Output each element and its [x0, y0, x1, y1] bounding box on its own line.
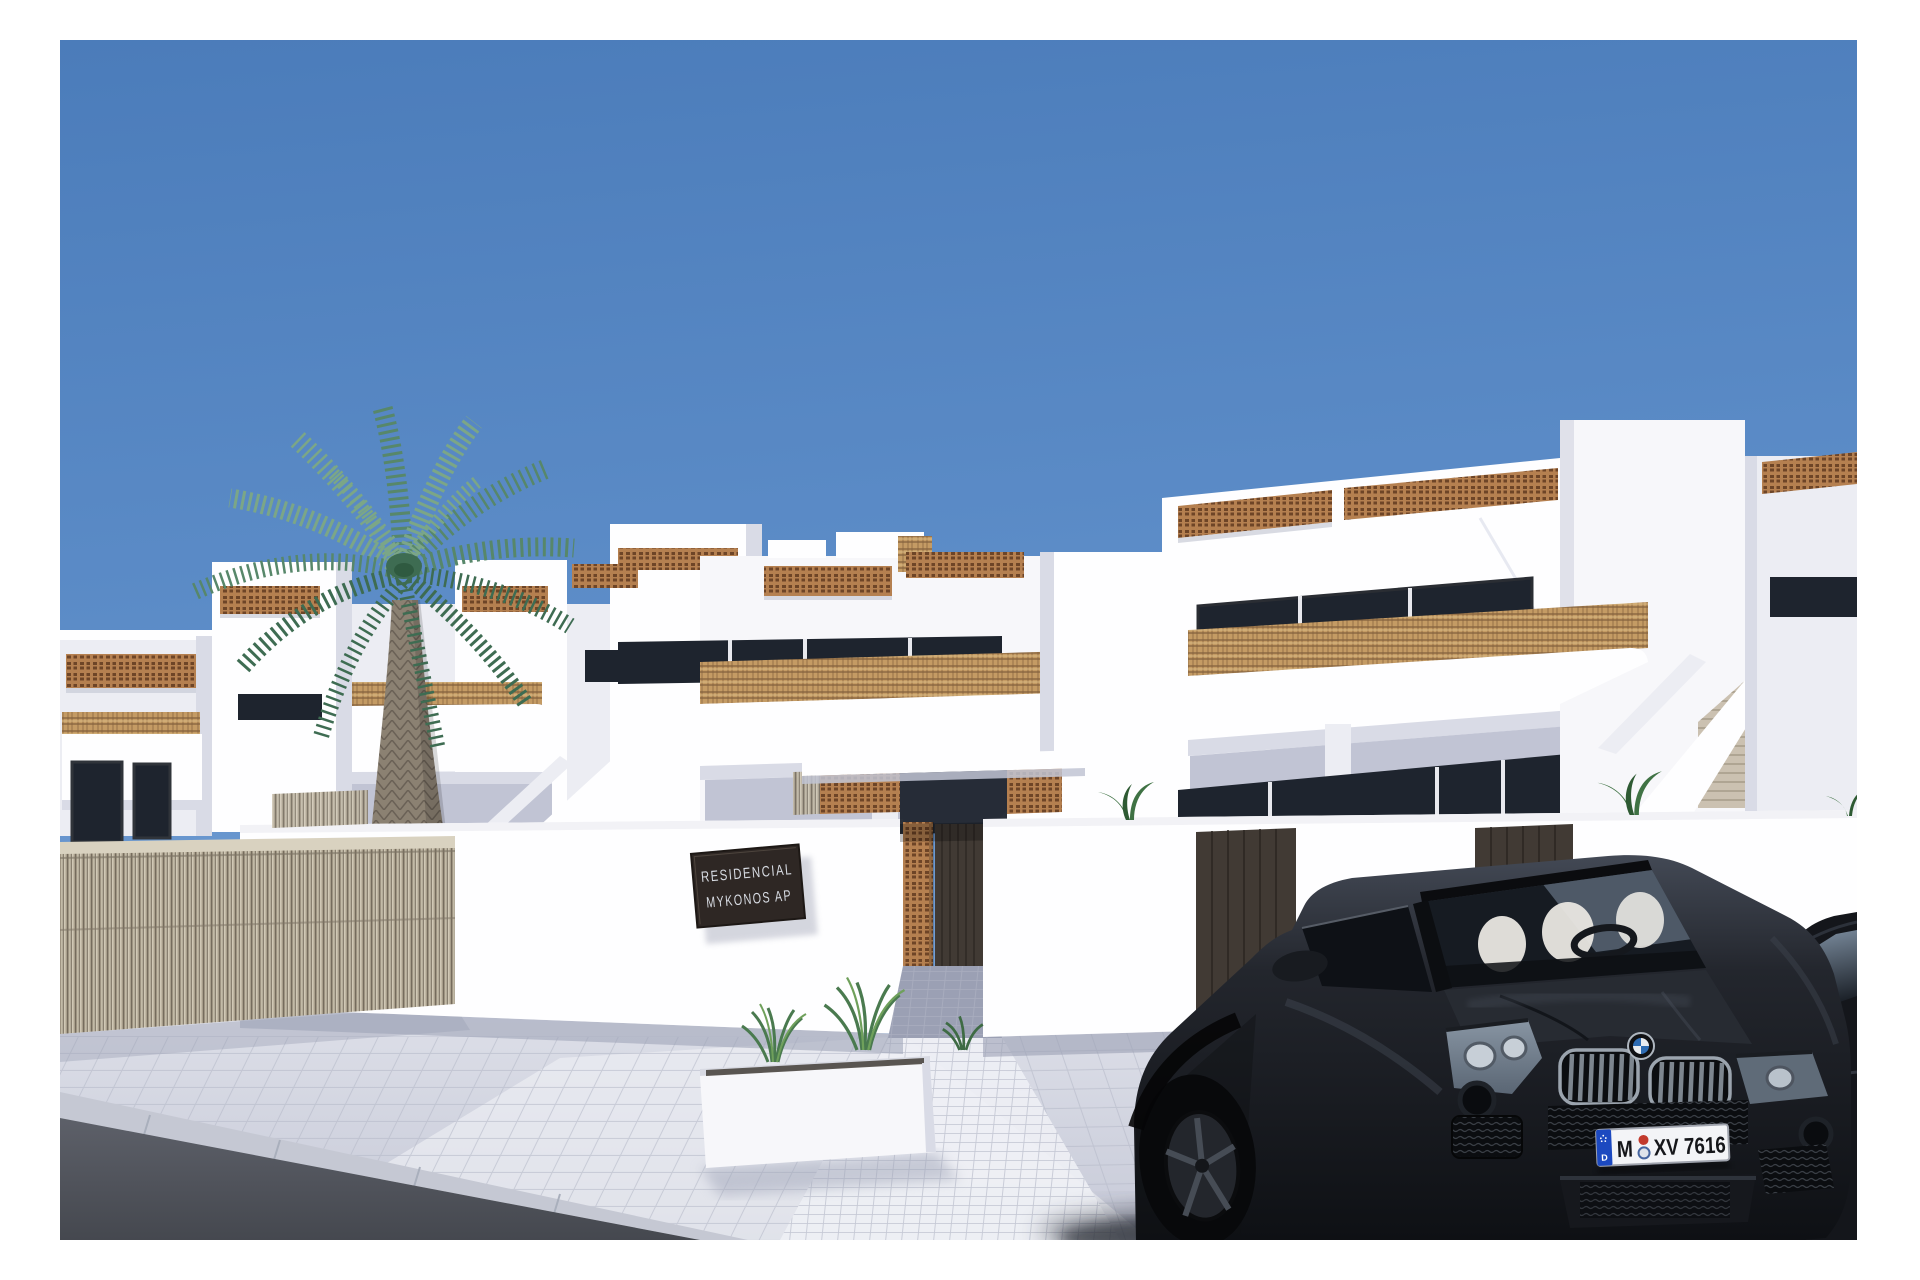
reed-fence-small	[272, 790, 368, 828]
window	[1770, 577, 1857, 617]
window-strip	[238, 694, 322, 720]
scene-canvas: RESIDENCIAL MYKONOS AP	[0, 0, 1920, 1280]
fog-lamp-left	[1460, 1083, 1494, 1117]
window	[134, 764, 170, 838]
bumper-intake-right	[1758, 1144, 1834, 1194]
plate-country-letter: D	[1601, 1152, 1608, 1162]
plate-city-code: M	[1616, 1135, 1633, 1162]
car-seat	[1616, 892, 1664, 948]
headlight-right	[1736, 1052, 1828, 1104]
bumper-intake-left	[1452, 1116, 1522, 1158]
roof-lattice-band	[906, 552, 1024, 578]
townhouse-far-right	[1745, 452, 1857, 832]
roof-lattice-band	[764, 566, 892, 596]
townhouse-far-left	[60, 630, 212, 842]
residencial-sign: RESIDENCIAL MYKONOS AP	[691, 844, 805, 927]
plate-sticker-bottom	[1638, 1147, 1649, 1158]
balcony-rattan-railing	[62, 712, 200, 734]
kidney-grille-left	[1560, 1050, 1638, 1104]
reed-fence	[60, 836, 455, 1034]
bmw-roundel-icon	[1628, 1033, 1654, 1059]
plate-number: XV 7616	[1653, 1131, 1726, 1160]
window	[72, 762, 122, 842]
balcony-rattan-railing	[352, 682, 542, 706]
entrance-lattice-column	[903, 822, 933, 967]
fog-lamp-right	[1801, 1119, 1831, 1149]
roof-lattice-band	[66, 654, 206, 688]
render-photo: RESIDENCIAL MYKONOS AP	[0, 0, 1920, 1280]
